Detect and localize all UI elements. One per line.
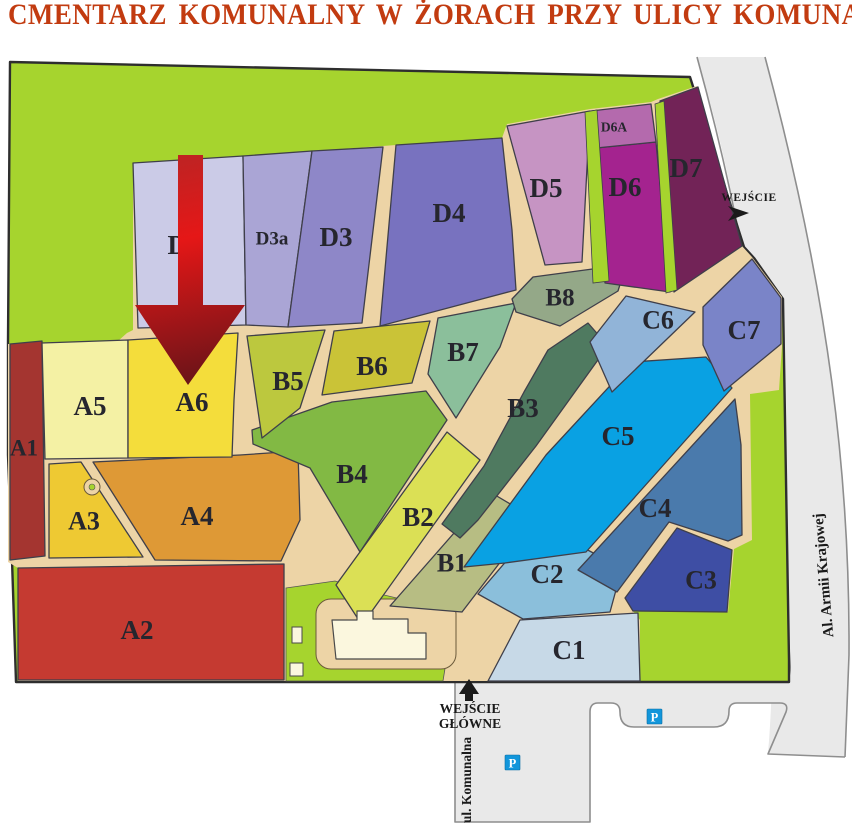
main-entrance-label-line1: WEJŚCIE: [440, 701, 501, 716]
section-label-C4: C4: [639, 493, 672, 523]
section-label-C2: C2: [531, 559, 564, 589]
small-building-2: [290, 663, 303, 676]
section-label-B4: B4: [336, 459, 368, 489]
section-label-D6A: D6A: [601, 120, 627, 135]
section-label-B5: B5: [272, 366, 304, 396]
cemetery-map: CMENTARZ KOMUNALNY W ŻORACH PRZY ULICY K…: [0, 0, 852, 826]
tree-dot: [89, 484, 95, 490]
section-label-B7: B7: [447, 337, 479, 367]
section-label-C5: C5: [602, 421, 635, 451]
section-label-A3: A3: [68, 507, 100, 536]
section-label-C3: C3: [685, 566, 717, 595]
section-label-D3: D3: [320, 222, 353, 252]
section-label-D6: D6: [609, 172, 642, 202]
cemetery-map-page: CMENTARZ KOMUNALNY W ŻORACH PRZY ULICY K…: [0, 0, 852, 826]
section-label-A6: A6: [176, 387, 209, 417]
main-entrance-label-line2: GŁÓWNE: [439, 716, 501, 731]
street-name-komunalna: ul. Komunalna: [459, 737, 474, 824]
section-label-D4: D4: [433, 198, 466, 228]
section-label-D3a: D3a: [256, 229, 289, 250]
section-label-C6: C6: [642, 306, 674, 335]
page-title: CMENTARZ KOMUNALNY W ŻORACH PRZY ULICY K…: [8, 0, 852, 31]
section-label-D5: D5: [530, 173, 563, 203]
section-label-B8: B8: [545, 285, 574, 312]
parking-sign-2: P: [505, 755, 520, 771]
parking-letter: P: [651, 711, 659, 725]
section-label-A5: A5: [74, 391, 107, 421]
section-label-B2: B2: [402, 502, 434, 532]
side-entrance-label: WEJŚCIE: [721, 190, 776, 204]
section-label-B1: B1: [437, 549, 467, 578]
parking-sign-1: P: [647, 709, 662, 725]
small-building-1: [292, 627, 302, 643]
section-label-B3: B3: [507, 393, 539, 423]
section-label-A1: A1: [10, 436, 38, 461]
section-label-C1: C1: [553, 635, 586, 665]
section-label-C7: C7: [728, 315, 761, 345]
section-label-A2: A2: [121, 615, 154, 645]
section-label-A4: A4: [181, 501, 214, 531]
section-label-B6: B6: [356, 351, 388, 381]
parking-letter: P: [509, 757, 517, 771]
section-label-D7: D7: [670, 153, 703, 183]
